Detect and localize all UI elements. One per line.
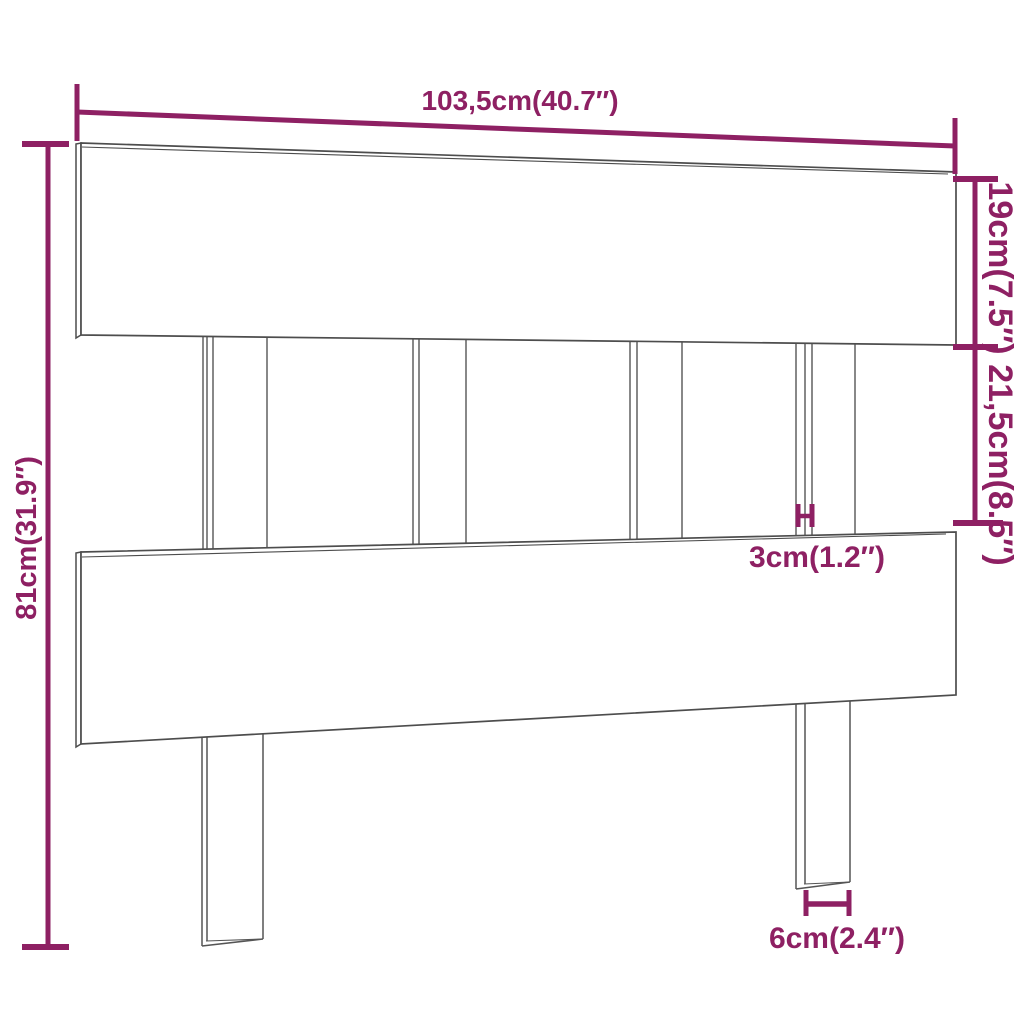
- right-leg: [796, 696, 850, 889]
- slat-2: [413, 333, 466, 555]
- slat-section-height-label: 21,5cm(8.5″): [981, 364, 1019, 566]
- width-dimension-label: 103,5cm(40.7″): [421, 85, 618, 116]
- legs: [202, 696, 850, 946]
- top-board-face: [81, 143, 956, 345]
- top-board: [76, 143, 956, 345]
- left-leg: [202, 729, 263, 946]
- top-board-height-label: 19cm(7.5″): [981, 181, 1019, 354]
- diagram-canvas: 103,5cm(40.7″) 19cm(7.5″) 21,5cm(8.5″) 8…: [0, 0, 1024, 1024]
- slat-4: [796, 333, 855, 555]
- leg-width-marker: [806, 890, 849, 916]
- slat-3: [630, 333, 682, 555]
- slat-thickness-label: 3cm(1.2″): [749, 541, 885, 574]
- total-height-label: 81cm(31.9″): [11, 456, 43, 620]
- slat-region: [203, 333, 855, 555]
- leg-width-label: 6cm(2.4″): [769, 922, 905, 955]
- headboard-dimension-diagram: 103,5cm(40.7″) 19cm(7.5″) 21,5cm(8.5″) 8…: [0, 0, 1024, 1024]
- slat-1: [203, 333, 267, 555]
